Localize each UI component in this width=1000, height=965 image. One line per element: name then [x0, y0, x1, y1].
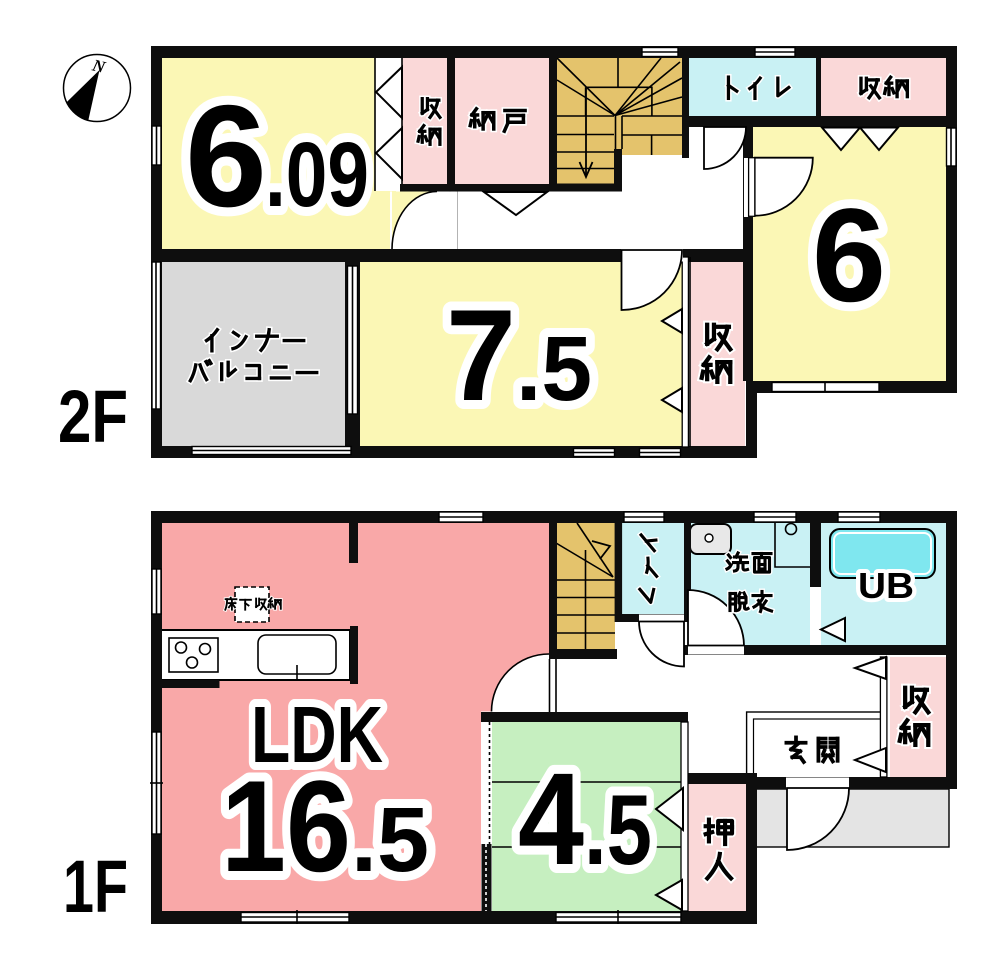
- svg-text:UB: UB: [858, 565, 914, 606]
- svg-text:1F: 1F: [63, 845, 128, 928]
- svg-text:6: 6: [812, 182, 886, 330]
- svg-text:2F: 2F: [58, 375, 128, 458]
